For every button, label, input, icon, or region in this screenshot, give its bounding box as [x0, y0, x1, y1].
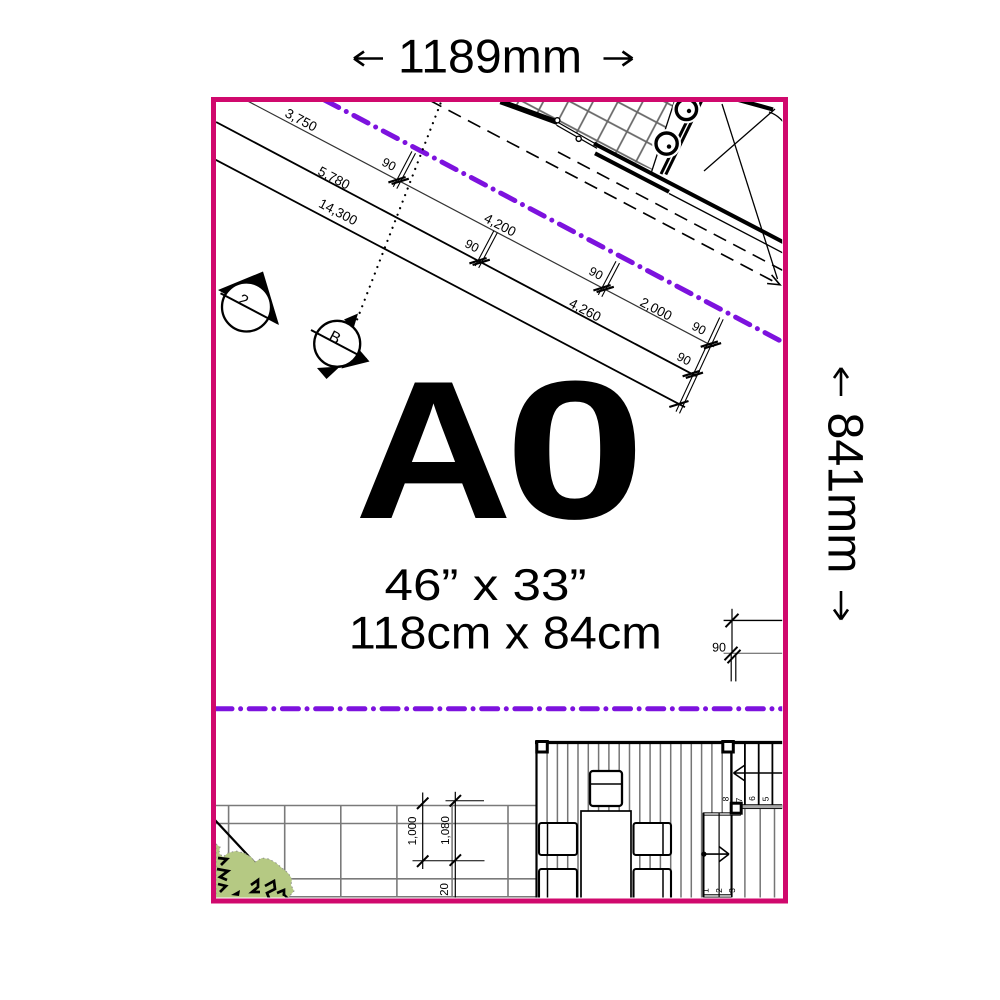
svg-text:46” x 33”: 46” x 33”: [385, 561, 587, 610]
svg-text:8: 8: [720, 796, 730, 801]
svg-text:118cm x 84cm: 118cm x 84cm: [349, 606, 662, 658]
svg-text:90: 90: [712, 641, 726, 655]
svg-text:841mm: 841mm: [818, 413, 874, 574]
svg-text:A: A: [355, 340, 513, 560]
svg-text:0: 0: [505, 340, 646, 560]
svg-text:1,080: 1,080: [440, 816, 452, 845]
svg-text:1189mm: 1189mm: [398, 31, 582, 84]
svg-text:1,000: 1,000: [407, 817, 419, 846]
svg-text:20: 20: [439, 883, 451, 896]
svg-text:6: 6: [747, 796, 757, 801]
svg-text:1: 1: [701, 888, 711, 893]
svg-text:2: 2: [714, 888, 724, 893]
svg-text:5: 5: [761, 796, 771, 801]
svg-text:3: 3: [727, 888, 737, 893]
svg-text:7: 7: [734, 797, 744, 802]
